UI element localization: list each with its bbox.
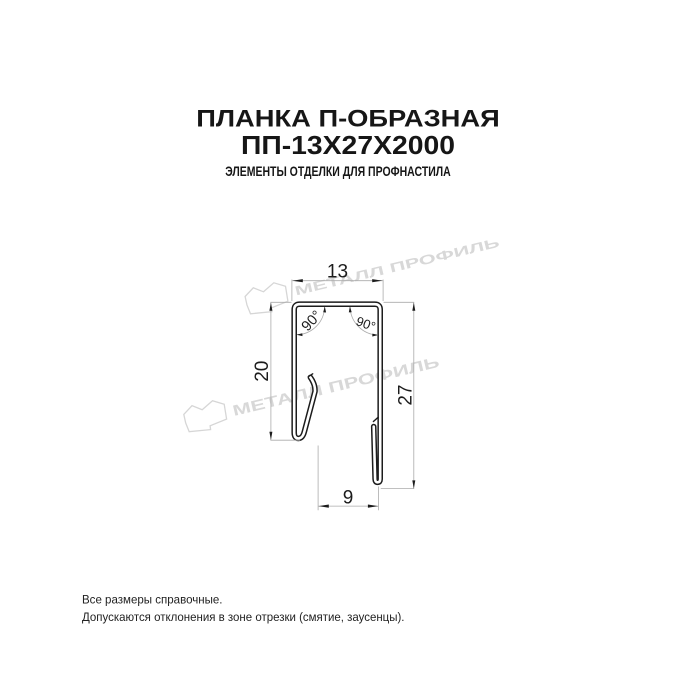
svg-text:ПЛАНКА П-ОБРАЗНАЯ: ПЛАНКА П-ОБРАЗНАЯ [196, 105, 500, 132]
svg-text:27: 27 [395, 385, 416, 406]
svg-text:20: 20 [252, 361, 273, 382]
svg-text:ЭЛЕМЕНТЫ ОТДЕЛКИ ДЛЯ ПРОФНАСТИ: ЭЛЕМЕНТЫ ОТДЕЛКИ ДЛЯ ПРОФНАСТИЛА [225, 163, 451, 179]
svg-text:Допускаются отклонения в зоне: Допускаются отклонения в зоне отрезки (с… [82, 610, 405, 624]
svg-text:9: 9 [343, 488, 354, 509]
svg-text:Все размеры справочные.: Все размеры справочные. [82, 592, 223, 606]
svg-text:13: 13 [327, 262, 348, 283]
svg-text:ПП-13Х27Х2000: ПП-13Х27Х2000 [241, 132, 455, 160]
